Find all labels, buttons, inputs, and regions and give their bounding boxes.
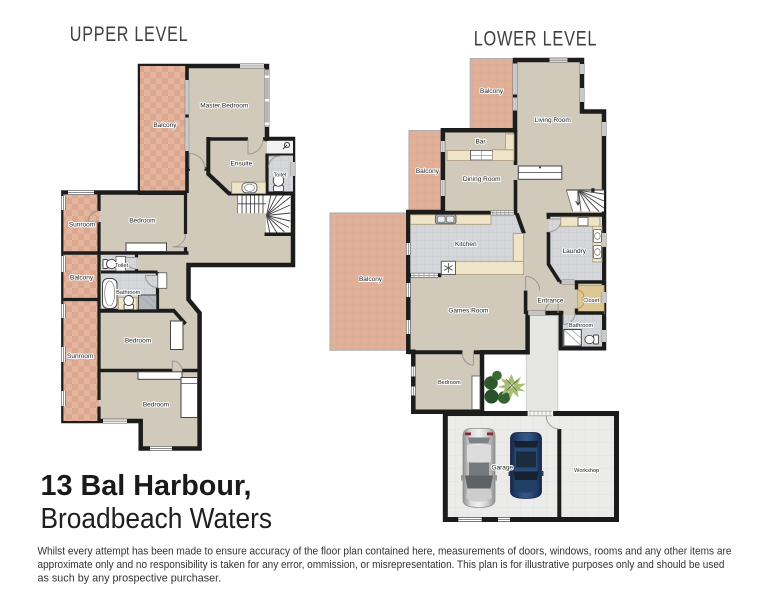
svg-text:Balcony: Balcony [153,122,177,129]
svg-text:Workshop: Workshop [574,468,599,474]
svg-text:Balcony: Balcony [359,276,383,283]
svg-text:Bedroom: Bedroom [129,218,155,225]
svg-text:Laundry: Laundry [563,248,587,255]
svg-text:Whilst every attempt has been: Whilst every attempt has been made to en… [38,546,732,558]
svg-text:Balcony: Balcony [70,275,94,282]
svg-text:Closet: Closet [583,298,599,304]
svg-text:Bedroom: Bedroom [438,380,461,386]
svg-text:Bathroom: Bathroom [569,323,594,329]
svg-text:UPPER LEVEL: UPPER LEVEL [70,22,188,46]
svg-text:LOWER LEVEL: LOWER LEVEL [474,27,598,51]
svg-text:Games Room: Games Room [448,307,488,314]
svg-text:as such by any prospective pur: as such by any prospective purchaser. [38,573,222,585]
svg-text:Kitchen: Kitchen [455,241,477,248]
svg-text:Toilet: Toilet [273,173,287,179]
svg-text:Master Bedroom: Master Bedroom [200,102,248,109]
svg-text:Toilet: Toilet [115,263,129,269]
svg-text:approximate only and no respon: approximate only and no responsibility i… [38,559,725,571]
svg-text:Ensuite: Ensuite [231,161,253,168]
svg-text:Bathroom: Bathroom [116,290,141,296]
svg-text:Bedroom: Bedroom [143,402,169,409]
svg-text:Balcony: Balcony [480,88,504,95]
svg-text:Dining Room: Dining Room [463,176,501,183]
svg-text:Balcony: Balcony [416,168,440,175]
svg-text:Sunroom: Sunroom [67,353,93,360]
svg-text:Entrance: Entrance [537,297,563,304]
svg-text:Sunroom: Sunroom [69,221,95,228]
svg-text:Bar: Bar [475,139,486,146]
svg-text:Bedroom: Bedroom [125,337,151,344]
svg-text:Living Room: Living Room [535,117,571,124]
svg-text:13 Bal Harbour,: 13 Bal Harbour, [41,470,252,502]
svg-text:Broadbeach Waters: Broadbeach Waters [41,503,273,535]
svg-text:Garage: Garage [491,464,513,471]
